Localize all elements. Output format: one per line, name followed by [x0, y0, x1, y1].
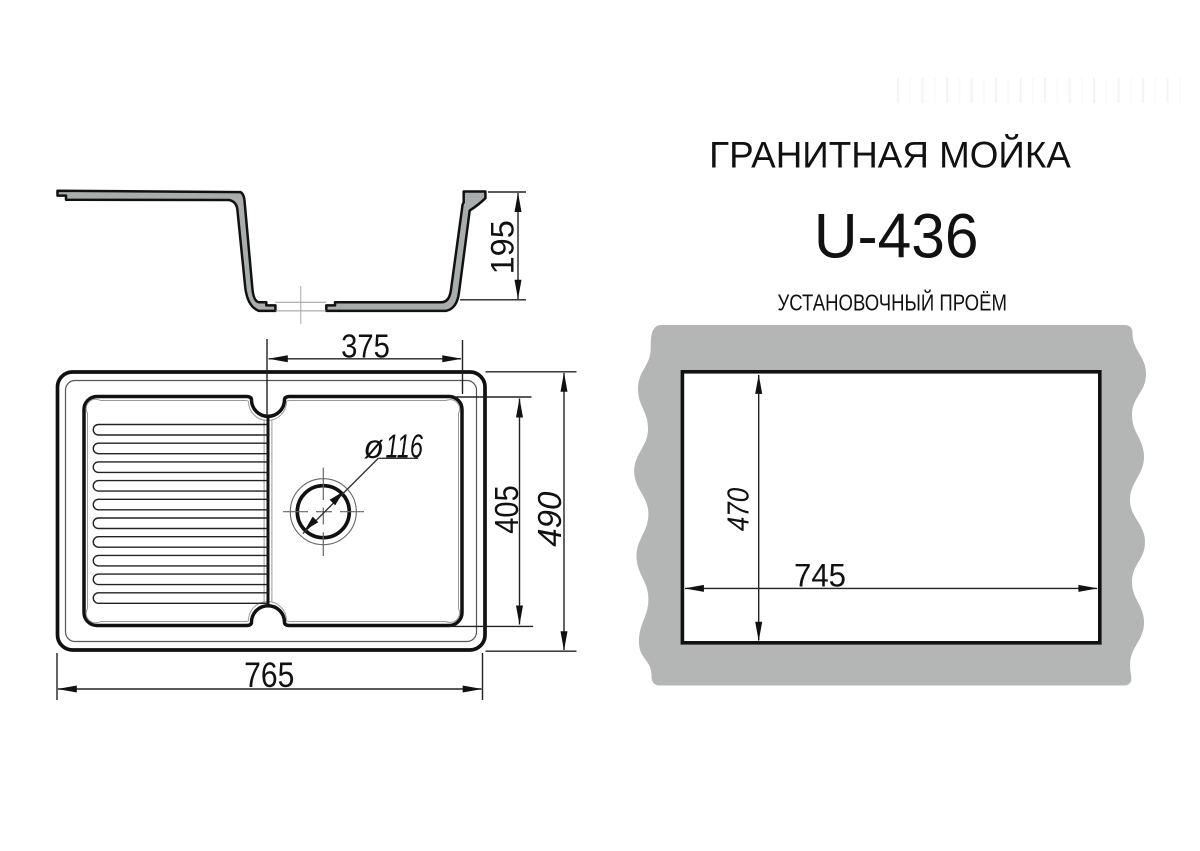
- svg-text:U-436: U-436: [814, 201, 979, 271]
- svg-text:195: 195: [485, 220, 521, 274]
- svg-text:375: 375: [341, 328, 390, 365]
- svg-text:745: 745: [794, 557, 846, 594]
- svg-text:765: 765: [244, 655, 294, 695]
- svg-text:ГРАНИТНАЯ МОЙКА: ГРАНИТНАЯ МОЙКА: [709, 134, 1071, 176]
- svg-text:ø: ø: [364, 429, 384, 466]
- svg-text:490: 490: [531, 491, 568, 547]
- svg-text:116: 116: [386, 428, 424, 465]
- svg-text:УСТАНОВОЧНЫЙ ПРОЁМ: УСТАНОВОЧНЫЙ ПРОЁМ: [777, 288, 1006, 316]
- svg-text:405: 405: [488, 485, 525, 533]
- svg-text:470: 470: [720, 488, 754, 531]
